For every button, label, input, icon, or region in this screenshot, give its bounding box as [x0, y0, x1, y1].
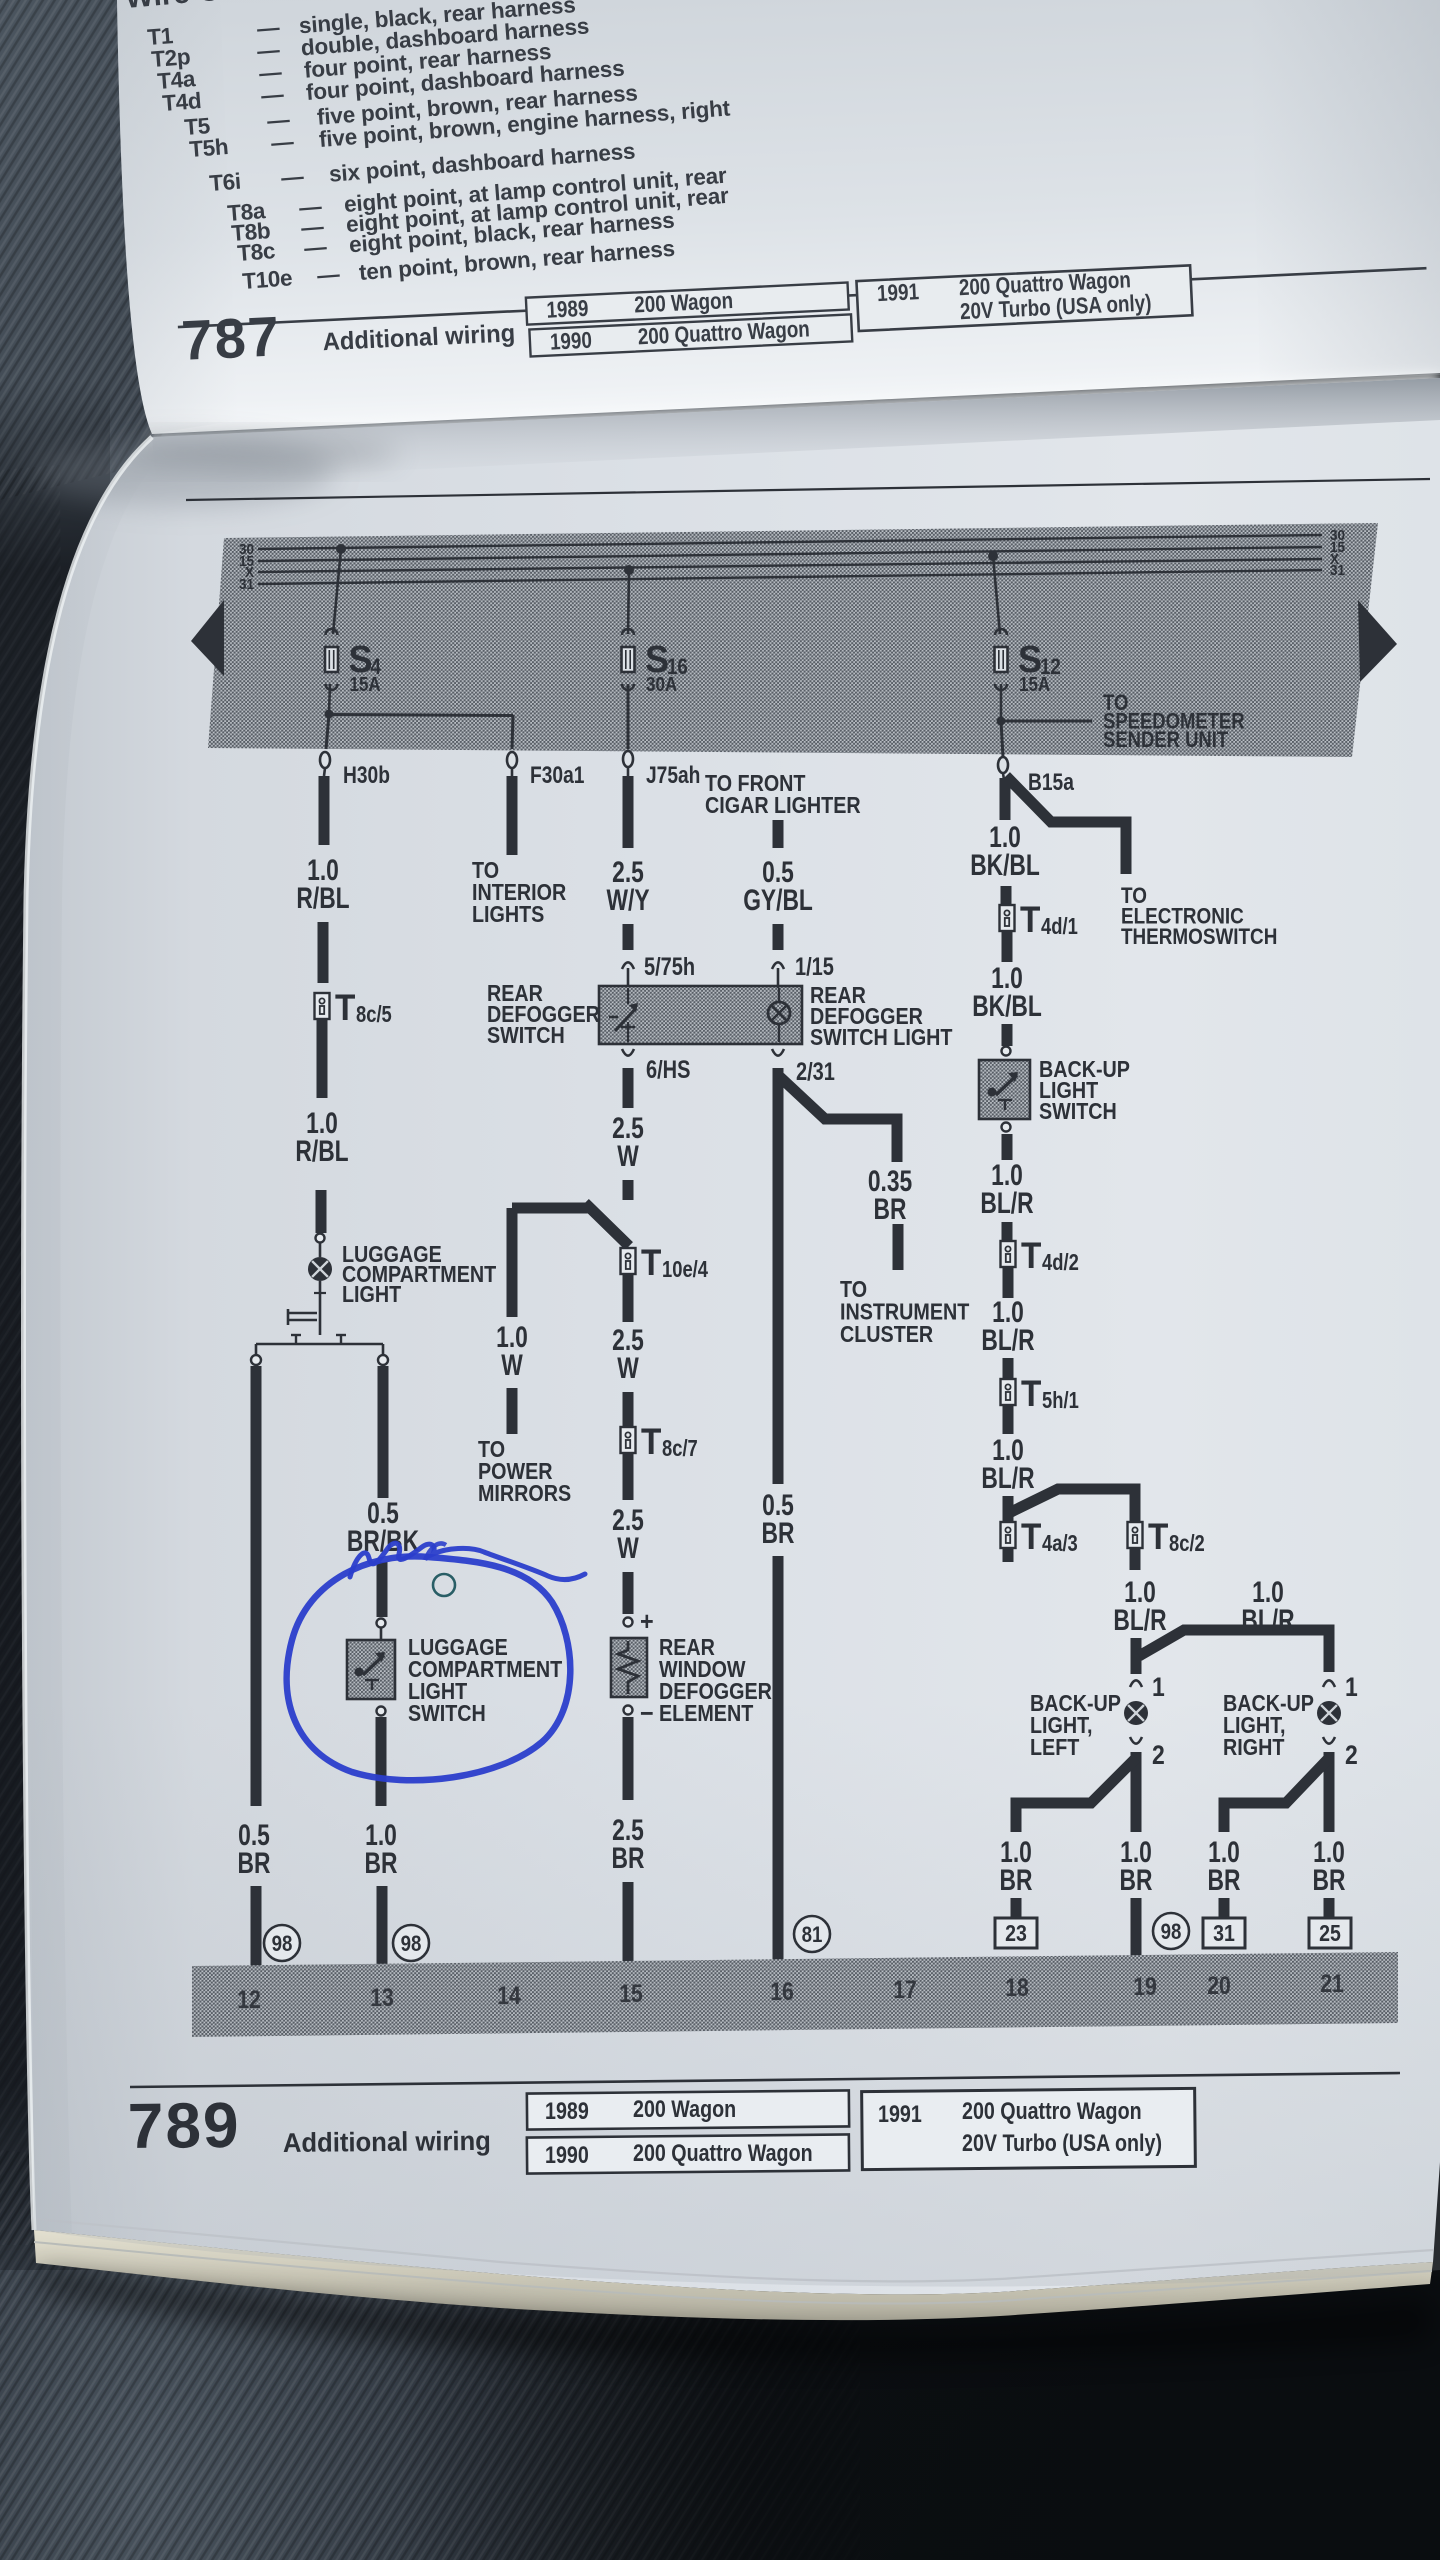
svg-text:31: 31	[1213, 1921, 1235, 1947]
svg-text:21: 21	[1320, 1969, 1344, 1997]
svg-text:BK/BL: BK/BL	[970, 848, 1040, 882]
svg-text:T8c: T8c	[236, 238, 275, 266]
svg-text:200 Wagon: 200 Wagon	[633, 2095, 736, 2122]
svg-text:Additional wiring: Additional wiring	[283, 2125, 491, 2158]
svg-text:2: 2	[1345, 1740, 1358, 1770]
svg-text:19: 19	[1133, 1972, 1157, 2000]
svg-text:T: T	[641, 1242, 662, 1283]
svg-text:T: T	[1021, 1373, 1042, 1414]
svg-text:200 Wagon: 200 Wagon	[634, 288, 734, 318]
svg-text:BR: BR	[1313, 1863, 1346, 1897]
svg-text:W: W	[617, 1531, 639, 1565]
svg-text:B15a: B15a	[1028, 768, 1075, 796]
svg-text:98: 98	[401, 1933, 422, 1957]
svg-text:H30b: H30b	[343, 761, 390, 789]
svg-text:16: 16	[770, 1977, 794, 2005]
svg-text:BR: BR	[762, 1516, 795, 1550]
svg-text:ELEMENT: ELEMENT	[659, 1699, 754, 1726]
svg-text:BR: BR	[1208, 1863, 1241, 1897]
svg-text:RIGHT: RIGHT	[1223, 1733, 1285, 1760]
svg-text:T4d: T4d	[161, 88, 202, 116]
svg-text:R/BL: R/BL	[295, 1134, 348, 1168]
svg-text:12: 12	[237, 1985, 261, 2013]
svg-text:1/15: 1/15	[795, 953, 834, 981]
svg-text:T: T	[335, 987, 356, 1028]
svg-text:R/BL: R/BL	[296, 881, 349, 915]
svg-text:BL/R: BL/R	[1241, 1603, 1294, 1637]
svg-text:BL/R: BL/R	[1113, 1603, 1166, 1637]
svg-text:8c/7: 8c/7	[662, 1436, 698, 1461]
svg-text:15A: 15A	[350, 673, 381, 696]
svg-text:BR: BR	[365, 1846, 398, 1880]
svg-text:SWITCH: SWITCH	[487, 1021, 565, 1048]
svg-text:15A: 15A	[1019, 673, 1050, 696]
svg-text:BR: BR	[1120, 1863, 1153, 1897]
svg-text:6/HS: 6/HS	[646, 1056, 690, 1084]
svg-text:T5h: T5h	[188, 134, 229, 162]
svg-text:81: 81	[802, 1924, 823, 1948]
svg-text:98: 98	[1161, 1921, 1182, 1945]
svg-text:−: −	[640, 1700, 654, 1728]
svg-text:20V Turbo (USA only): 20V Turbo (USA only)	[962, 2129, 1162, 2156]
svg-text:BL/R: BL/R	[981, 1323, 1034, 1357]
svg-text:CIGAR LIGHTER: CIGAR LIGHTER	[705, 791, 861, 818]
svg-text:13: 13	[370, 1983, 394, 2011]
svg-text:BK/BL: BK/BL	[972, 989, 1042, 1023]
svg-text:4d/2: 4d/2	[1042, 1250, 1079, 1275]
svg-text:BL/R: BL/R	[980, 1186, 1033, 1220]
svg-text:5/75h: 5/75h	[644, 953, 695, 981]
svg-text:F30a1: F30a1	[530, 761, 584, 789]
svg-text:1989: 1989	[545, 2097, 589, 2124]
svg-text:W: W	[617, 1351, 639, 1385]
svg-text:SWITCH: SWITCH	[1039, 1097, 1117, 1124]
svg-text:+: +	[640, 1608, 654, 1636]
svg-text:1991: 1991	[876, 279, 919, 306]
svg-text:SWITCH LIGHT: SWITCH LIGHT	[810, 1023, 953, 1050]
svg-text:20: 20	[1207, 1971, 1231, 1999]
svg-text:4a/3: 4a/3	[1042, 1531, 1078, 1556]
svg-text:23: 23	[1005, 1921, 1027, 1947]
svg-text:THERMOSWITCH: THERMOSWITCH	[1121, 925, 1277, 950]
svg-text:BR: BR	[1000, 1863, 1033, 1897]
svg-text:J75ah: J75ah	[646, 761, 700, 789]
svg-text:SWITCH: SWITCH	[408, 1699, 486, 1726]
svg-text:2: 2	[1152, 1740, 1165, 1770]
svg-text:25: 25	[1319, 1921, 1341, 1947]
svg-text:15: 15	[619, 1979, 643, 2007]
svg-text:98: 98	[272, 1933, 293, 1957]
svg-text:—: —	[260, 82, 285, 109]
svg-text:1990: 1990	[549, 328, 592, 355]
svg-text:CLUSTER: CLUSTER	[840, 1320, 933, 1347]
svg-text:—: —	[270, 129, 295, 156]
svg-text:17: 17	[893, 1975, 917, 2003]
svg-text:789: 789	[127, 2089, 241, 2162]
svg-text:W: W	[617, 1139, 639, 1173]
svg-text:5h/1: 5h/1	[1042, 1388, 1079, 1413]
svg-text:LEFT: LEFT	[1030, 1733, 1080, 1760]
svg-text:2/31: 2/31	[796, 1058, 835, 1086]
svg-text:BR: BR	[612, 1841, 645, 1875]
svg-text:BR: BR	[238, 1846, 271, 1880]
svg-text:30A: 30A	[646, 673, 677, 696]
svg-text:W: W	[501, 1348, 523, 1382]
svg-text:GY/BL: GY/BL	[743, 883, 813, 917]
svg-text:T: T	[1020, 899, 1041, 940]
svg-text:31: 31	[1330, 562, 1345, 579]
svg-text:1: 1	[1152, 1672, 1165, 1702]
svg-text:T: T	[641, 1421, 662, 1462]
svg-text:787: 787	[180, 304, 282, 372]
svg-text:T: T	[1021, 1516, 1042, 1557]
svg-text:8c/5: 8c/5	[356, 1002, 392, 1027]
svg-text:—: —	[280, 164, 305, 191]
svg-text:BL/R: BL/R	[981, 1461, 1034, 1495]
svg-text:—: —	[316, 262, 341, 289]
svg-text:4d/1: 4d/1	[1041, 914, 1078, 939]
svg-text:T6i: T6i	[208, 169, 241, 196]
svg-text:18: 18	[1005, 1973, 1029, 2001]
svg-text:LIGHTS: LIGHTS	[472, 900, 544, 927]
svg-text:MIRRORS: MIRRORS	[478, 1479, 571, 1506]
svg-text:W/Y: W/Y	[606, 883, 649, 917]
svg-text:14: 14	[497, 1981, 521, 2009]
svg-text:BR: BR	[874, 1192, 907, 1226]
svg-text:1989: 1989	[546, 296, 589, 323]
svg-text:1: 1	[1345, 1672, 1358, 1702]
svg-text:200 Quattro Wagon: 200 Quattro Wagon	[962, 2097, 1142, 2124]
svg-text:SENDER UNIT: SENDER UNIT	[1103, 729, 1229, 753]
svg-text:T10e: T10e	[241, 265, 292, 294]
svg-text:1991: 1991	[878, 2100, 922, 2127]
svg-text:T: T	[1148, 1516, 1169, 1557]
svg-text:200 Quattro Wagon: 200 Quattro Wagon	[633, 2139, 813, 2166]
svg-text:1990: 1990	[545, 2141, 589, 2168]
svg-text:10e/4: 10e/4	[662, 1257, 708, 1282]
svg-text:T: T	[1021, 1235, 1042, 1276]
svg-text:8c/2: 8c/2	[1169, 1531, 1205, 1556]
svg-text:LIGHT: LIGHT	[342, 1280, 402, 1307]
svg-text:—: —	[303, 234, 328, 261]
svg-text:31: 31	[239, 576, 254, 593]
